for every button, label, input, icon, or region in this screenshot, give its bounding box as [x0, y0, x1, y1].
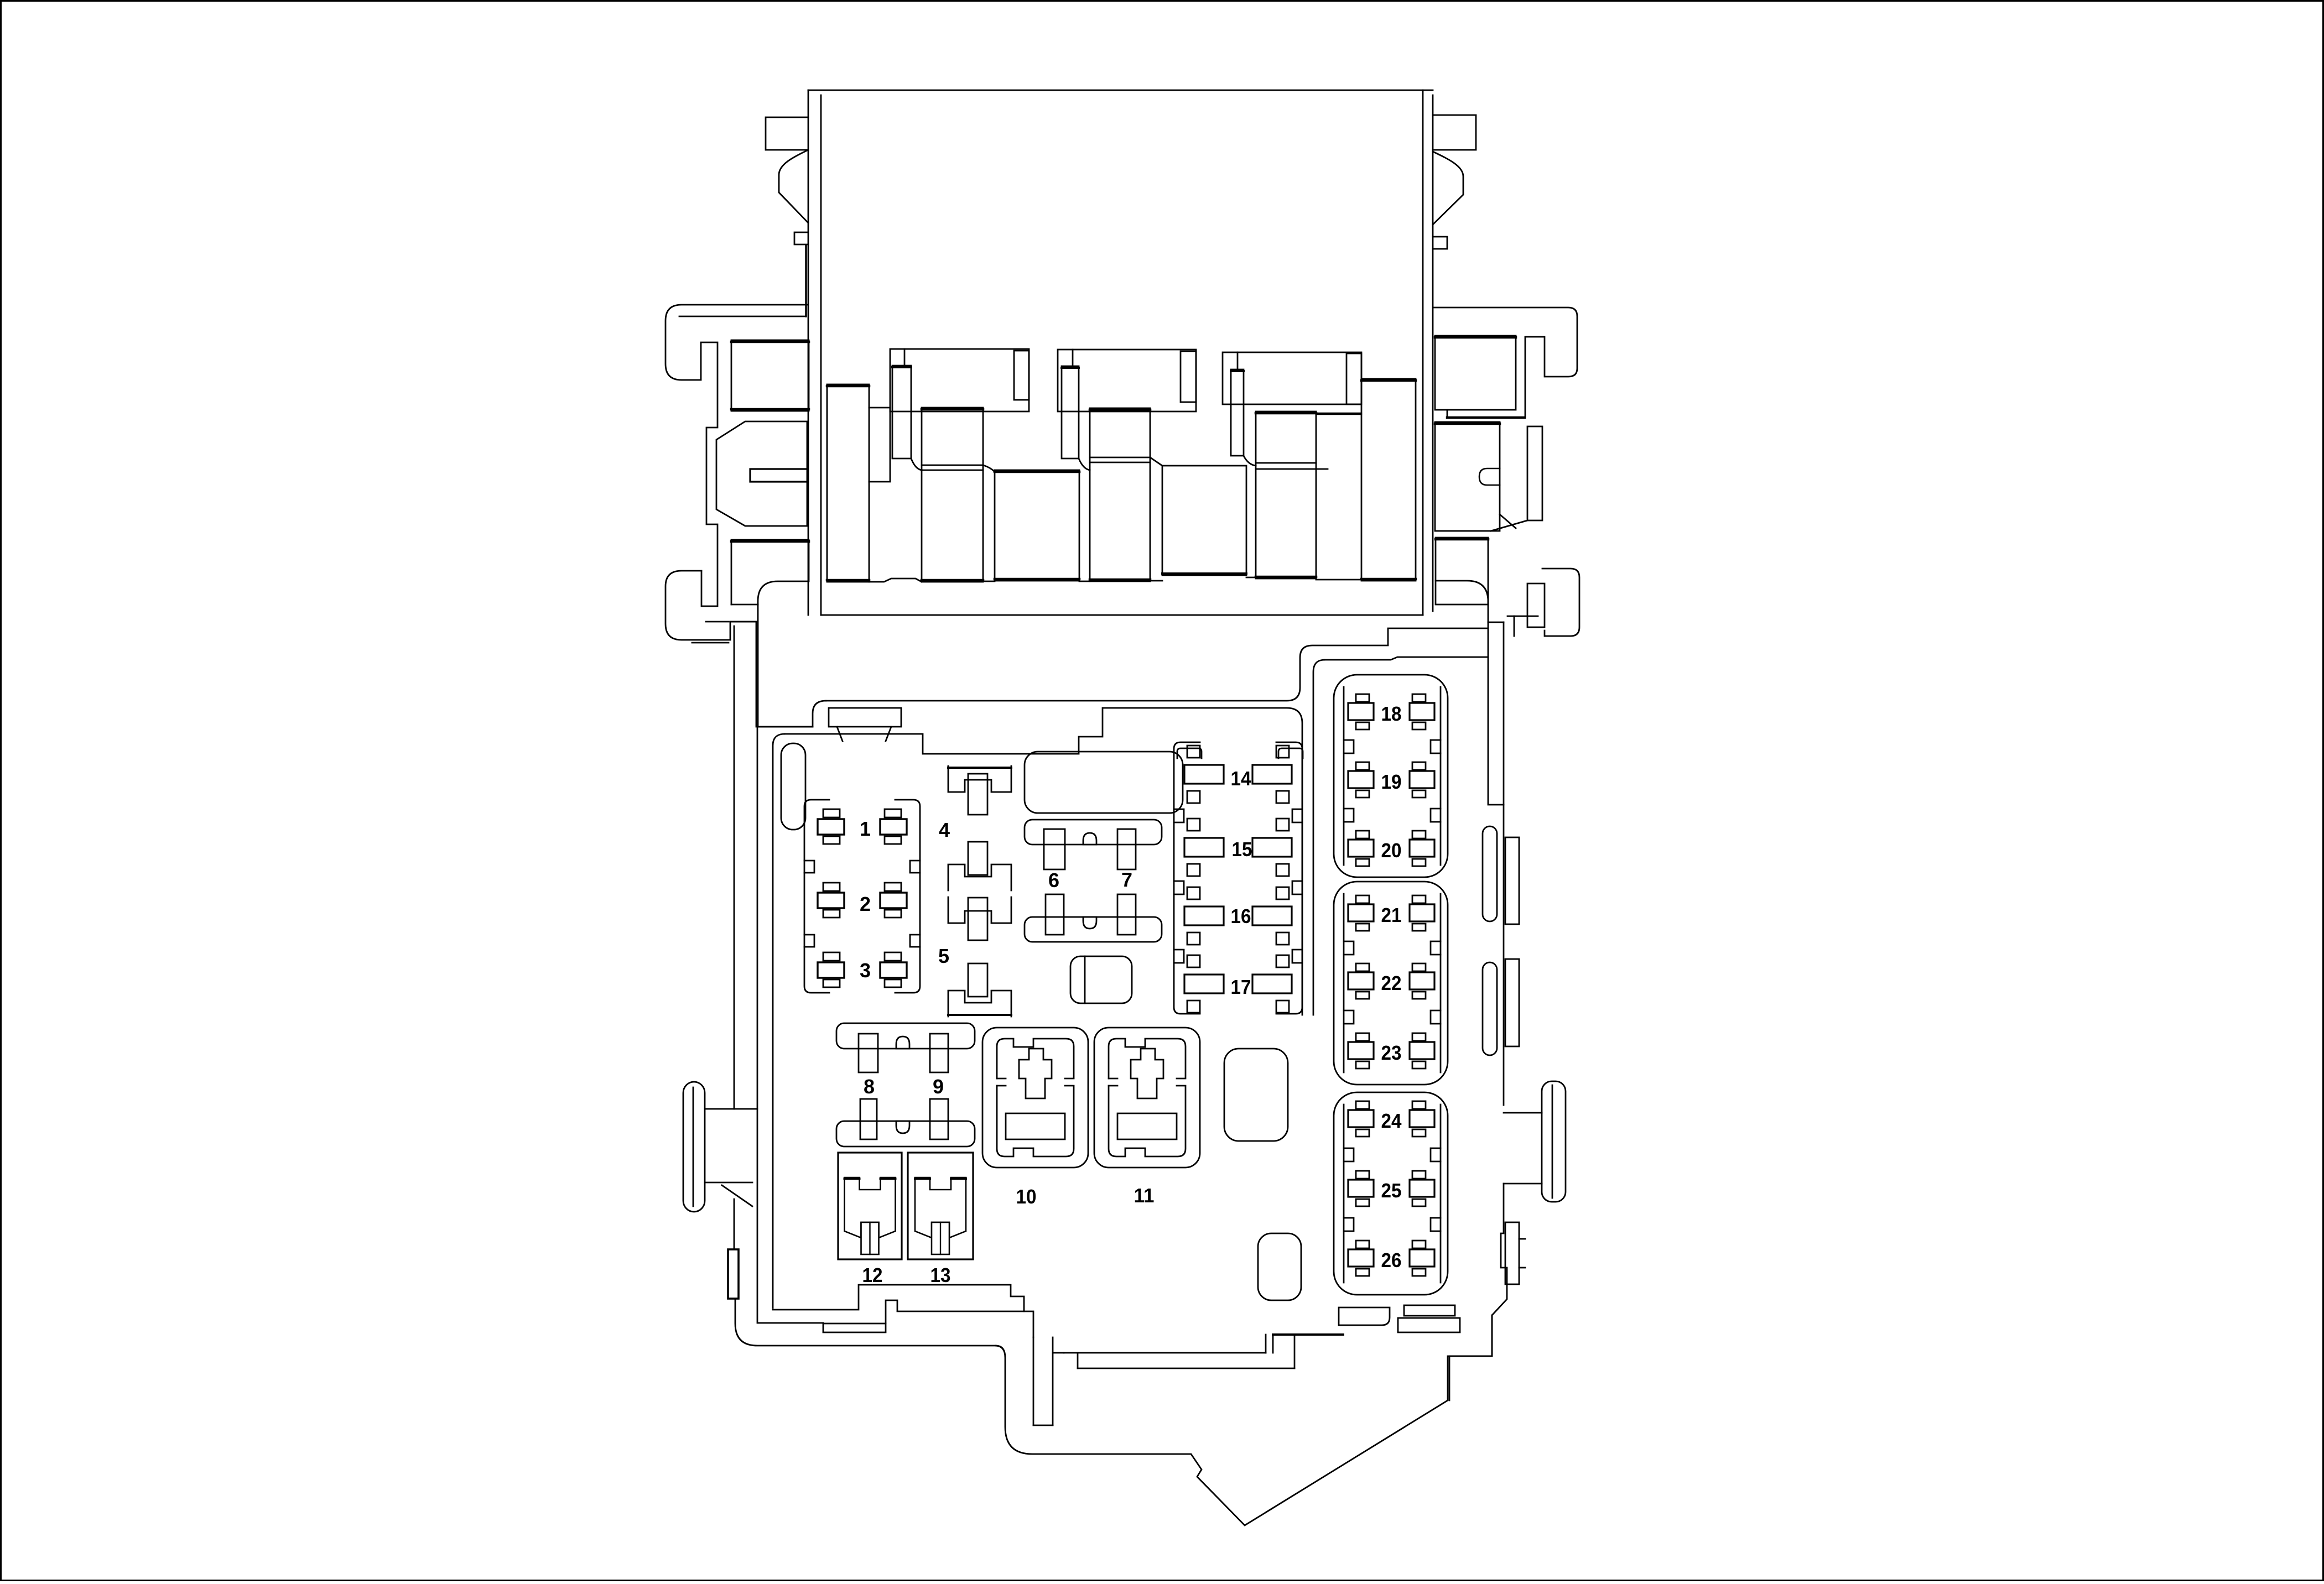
svg-text:21: 21 — [1381, 904, 1402, 926]
svg-text:22: 22 — [1381, 972, 1402, 994]
svg-text:14: 14 — [1231, 767, 1251, 790]
svg-text:12: 12 — [862, 1264, 883, 1286]
svg-text:3: 3 — [860, 959, 871, 982]
svg-text:1: 1 — [860, 817, 871, 840]
svg-text:19: 19 — [1381, 770, 1402, 793]
svg-text:5: 5 — [938, 945, 949, 967]
svg-text:6: 6 — [1048, 869, 1059, 892]
svg-text:26: 26 — [1381, 1249, 1402, 1272]
svg-text:8: 8 — [864, 1075, 875, 1098]
svg-text:18: 18 — [1381, 702, 1402, 725]
svg-text:23: 23 — [1381, 1041, 1402, 1064]
svg-text:9: 9 — [933, 1075, 944, 1098]
svg-text:25: 25 — [1381, 1179, 1402, 1202]
svg-text:7: 7 — [1121, 868, 1132, 891]
svg-text:2: 2 — [860, 893, 871, 915]
svg-text:15: 15 — [1232, 838, 1252, 861]
svg-text:24: 24 — [1381, 1109, 1402, 1132]
svg-text:16: 16 — [1231, 905, 1251, 928]
svg-text:4: 4 — [939, 819, 950, 841]
svg-text:10: 10 — [1016, 1185, 1037, 1208]
svg-text:13: 13 — [930, 1264, 951, 1286]
svg-text:20: 20 — [1381, 839, 1402, 862]
svg-text:11: 11 — [1134, 1184, 1155, 1207]
svg-text:17: 17 — [1231, 976, 1251, 998]
